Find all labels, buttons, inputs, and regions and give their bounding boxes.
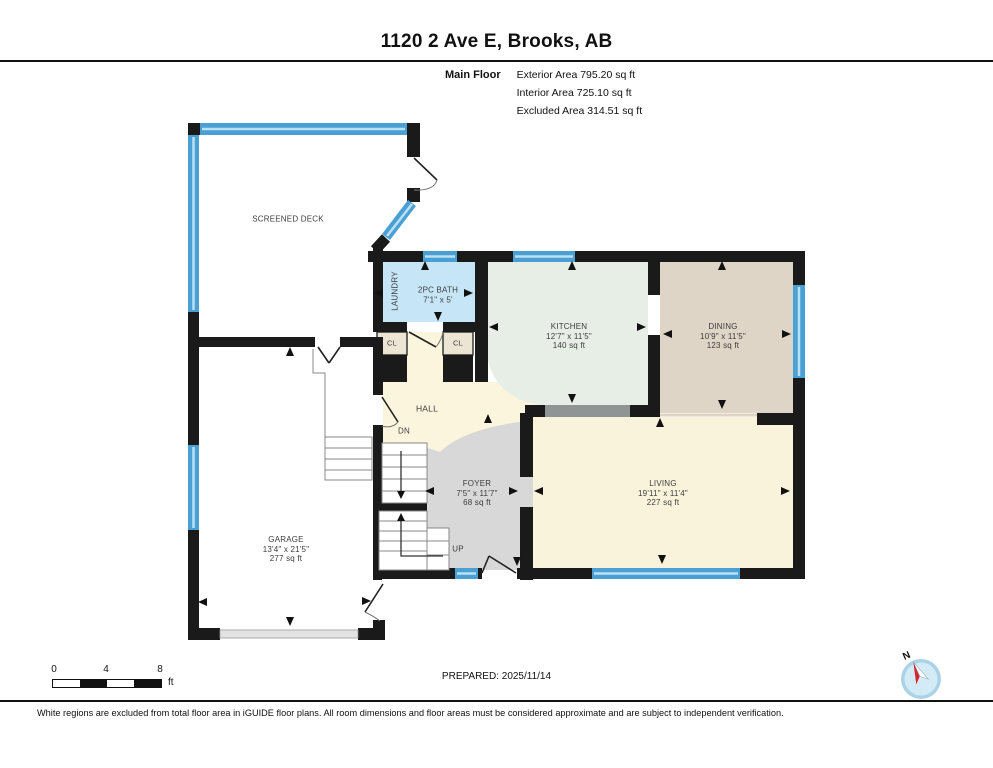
interior-area: Interior Area 725.10 sq ft: [517, 84, 643, 102]
room-name: 2PC BATH: [418, 286, 458, 296]
exterior-area: Exterior Area 795.20 sq ft: [517, 66, 643, 84]
closet-right-label: CL: [453, 338, 463, 348]
disclaimer-text: White regions are excluded from total fl…: [37, 708, 784, 718]
deck-diagonal-wall: [375, 238, 386, 250]
room-label-kitchen: KITCHEN 12'7" x 11'5" 140 sq ft: [546, 322, 592, 351]
compass-north-label: N: [901, 650, 912, 663]
room-label-bath: 2PC BATH 7'1" x 5': [418, 286, 458, 305]
room-area: 140 sq ft: [546, 341, 592, 351]
room-name: DINING: [700, 322, 746, 332]
room-name: LIVING: [638, 479, 688, 489]
room-area: 227 sq ft: [638, 498, 688, 508]
room-dims: 12'7" x 11'5": [546, 331, 592, 341]
room-dims: 19'11" x 11'4": [638, 488, 688, 498]
room-fills: [377, 262, 793, 570]
room-name: KITCHEN: [546, 322, 592, 332]
floor-stats: Main Floor Exterior Area 795.20 sq ft In…: [445, 66, 642, 120]
room-label-hall: HALL: [416, 404, 438, 414]
room-name: HALL: [416, 404, 438, 414]
header-divider: [0, 60, 993, 62]
room-label-foyer: FOYER 7'5" x 11'7" 68 sq ft: [456, 479, 497, 508]
stairs-winders: [427, 528, 449, 570]
room-dims: 7'1" x 5': [418, 295, 458, 305]
room-label-screened-deck: SCREENED DECK: [252, 214, 324, 224]
room-name: GARAGE: [263, 535, 309, 545]
room-label-living: LIVING 19'11" x 11'4" 227 sq ft: [638, 479, 688, 508]
excluded-area: Excluded Area 314.51 sq ft: [517, 102, 643, 120]
room-area: 68 sq ft: [456, 498, 497, 508]
kitchen-living-opening: [545, 405, 630, 417]
room-dims: 13'4" x 21'5": [263, 544, 309, 554]
stairs-up-label: UP: [452, 544, 464, 554]
room-name: FOYER: [456, 479, 497, 489]
stairs-down-label: DN: [398, 426, 410, 436]
room-label-garage: GARAGE 13'4" x 21'5" 277 sq ft: [263, 535, 309, 564]
stairs-down-flight: [382, 443, 427, 503]
room-name: LAUNDRY: [390, 271, 400, 311]
room-label-dining: DINING 10'9" x 11'5" 123 sq ft: [700, 322, 746, 351]
closet-left-label: CL: [387, 338, 397, 348]
room-area: 123 sq ft: [700, 341, 746, 351]
room-label-laundry: LAUNDRY: [390, 271, 400, 311]
room-dims: 7'5" x 11'7": [456, 488, 497, 498]
footer-divider: [0, 700, 993, 702]
floor-label: Main Floor: [445, 66, 501, 84]
room-name: SCREENED DECK: [252, 214, 324, 224]
floorplan-page: 1120 2 Ave E, Brooks, AB Main Floor Exte…: [0, 0, 993, 768]
room-area: 277 sq ft: [263, 554, 309, 564]
garage-overhead-door: [220, 630, 358, 638]
prepared-date: PREPARED: 2025/11/14: [0, 671, 993, 682]
page-title: 1120 2 Ave E, Brooks, AB: [0, 31, 993, 53]
room-dims: 10'9" x 11'5": [700, 331, 746, 341]
